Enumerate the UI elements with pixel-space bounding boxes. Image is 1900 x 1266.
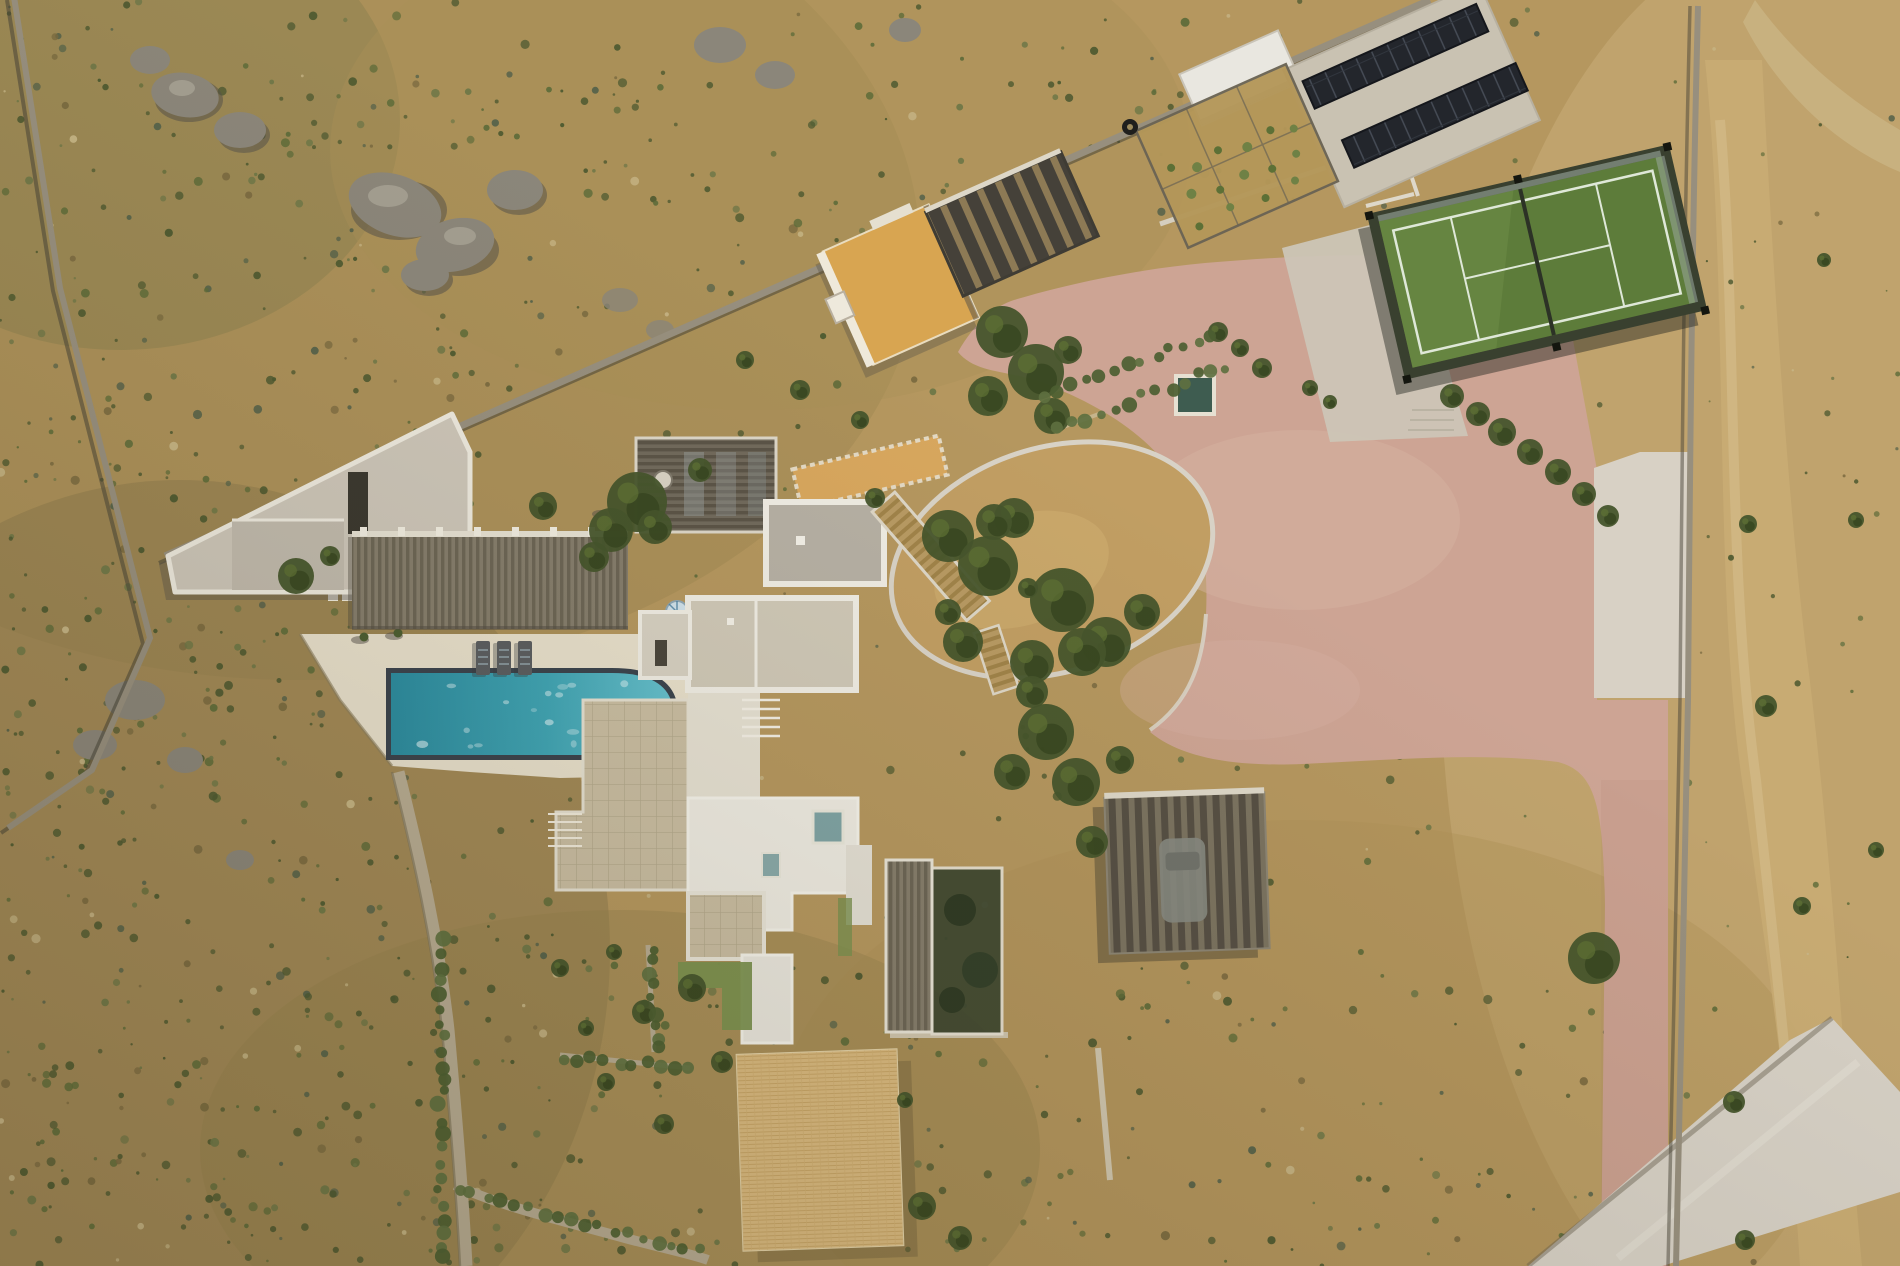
aerial-photo-canvas: [0, 0, 1900, 1266]
vignette: [0, 0, 1900, 1266]
aerial-photo: [0, 0, 1900, 1266]
